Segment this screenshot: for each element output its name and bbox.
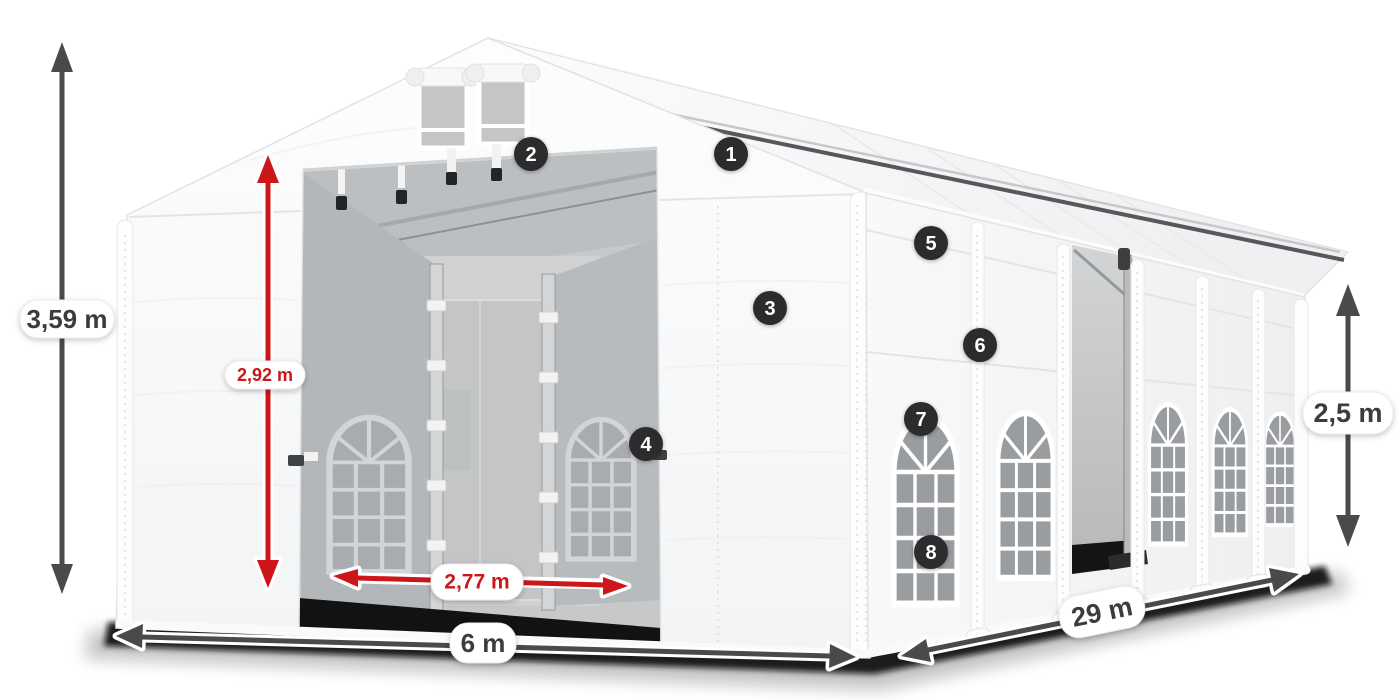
callout-1: 1 (714, 137, 748, 171)
interior-right-door-window (568, 420, 634, 560)
tent-dimension-diagram: 3,59 m 2,92 m (0, 0, 1400, 700)
tent-illustration: 3,59 m 2,92 m (0, 0, 1400, 700)
side-entrance-pole (1124, 255, 1131, 560)
dimension-label-door-width: 2,77 m (431, 564, 523, 600)
callout-2: 2 (514, 137, 548, 171)
dimension-label-door-height: 2,92 m (225, 361, 305, 389)
callout-7: 7 (904, 402, 938, 436)
side-window-4 (1213, 409, 1247, 534)
dimension-label-side-height: 2,5 m (1303, 392, 1393, 434)
side-window-3 (1150, 405, 1187, 545)
svg-text:2: 2 (525, 144, 536, 166)
side-window-2 (998, 413, 1053, 578)
svg-text:6 m: 6 m (461, 628, 506, 658)
side-window-1 (894, 418, 957, 604)
dimension-side-height: 2,5 m (1303, 284, 1393, 547)
svg-text:5: 5 (925, 233, 936, 255)
svg-text:3: 3 (764, 298, 775, 320)
svg-text:8: 8 (925, 542, 936, 564)
interior-left-door-window (330, 418, 409, 572)
dimension-total-height: 3,59 m (20, 42, 114, 594)
callout-5: 5 (914, 226, 948, 260)
interior-right-door (553, 236, 661, 606)
gable-window-right (466, 64, 540, 144)
callout-6: 6 (963, 328, 997, 362)
svg-text:7: 7 (915, 409, 926, 431)
svg-text:3,59 m: 3,59 m (27, 304, 108, 334)
svg-text:2,92 m: 2,92 m (237, 365, 293, 385)
svg-text:4: 4 (640, 434, 652, 456)
interior-post-right (539, 274, 558, 610)
svg-text:2,77 m: 2,77 m (444, 571, 509, 594)
svg-text:6: 6 (974, 335, 985, 357)
callout-3: 3 (753, 291, 787, 325)
svg-text:2,5 m: 2,5 m (1313, 398, 1382, 428)
callout-4: 4 (629, 427, 663, 461)
callout-8: 8 (914, 535, 948, 569)
dimension-label-front-width: 6 m (450, 623, 516, 663)
side-window-5 (1265, 414, 1295, 526)
interior-post-left (427, 264, 446, 614)
svg-text:1: 1 (725, 144, 736, 166)
dimension-label-total-height: 3,59 m (20, 300, 114, 338)
